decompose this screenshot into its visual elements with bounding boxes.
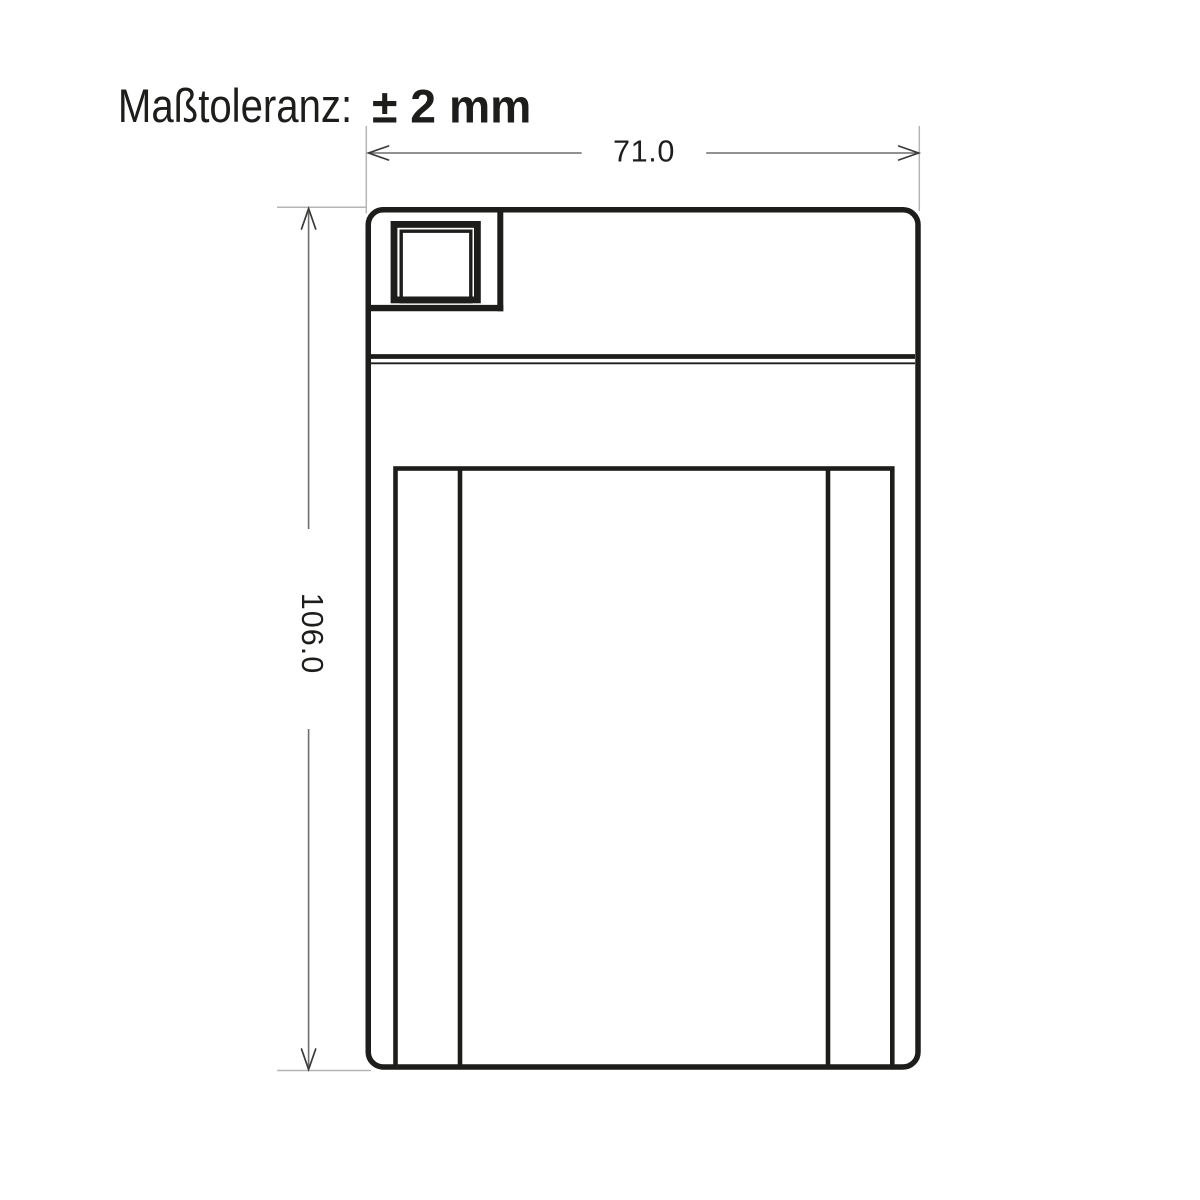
svg-text:Maßtoleranz:: Maßtoleranz: (118, 80, 352, 133)
svg-text:± 2 mm: ± 2 mm (372, 80, 531, 133)
svg-text:106.0: 106.0 (295, 593, 329, 675)
svg-text:71.0: 71.0 (613, 135, 675, 169)
